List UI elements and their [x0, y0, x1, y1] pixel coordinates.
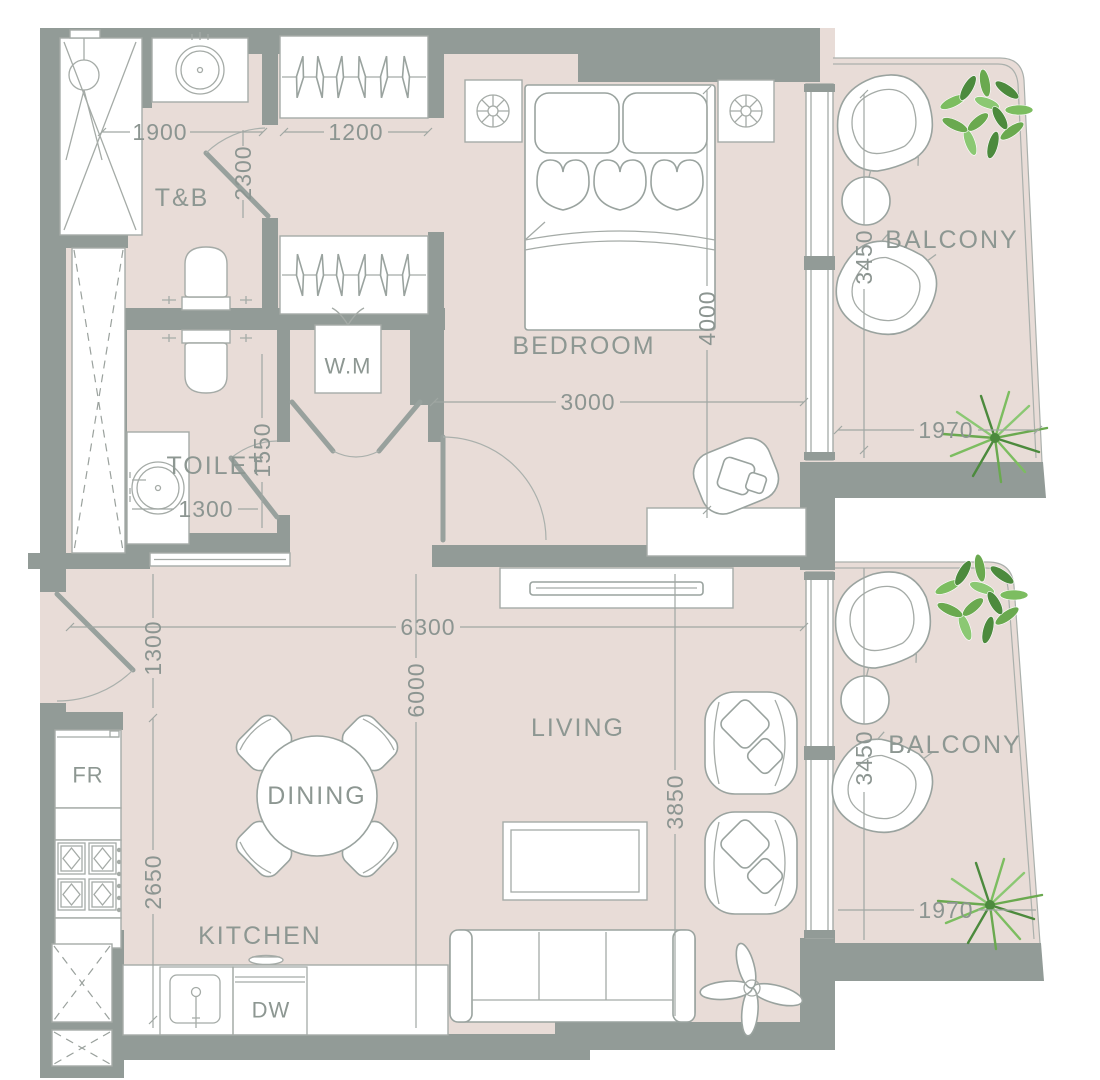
kitchen-counter-mid [55, 808, 121, 840]
wall-shower-divider [142, 28, 152, 108]
desk [647, 508, 806, 556]
label-balcony-lower: BALCONY [888, 731, 1021, 759]
dim-upper-balcony-length: 3450 [851, 229, 877, 284]
label-dishwasher: DW [252, 998, 291, 1023]
toilet-basin [127, 432, 189, 544]
label-washing-machine: W.M [325, 354, 372, 379]
wall-wm-right [410, 330, 428, 405]
nightstand-right [718, 80, 774, 142]
dim-kitchen-length: 2650 [140, 854, 166, 909]
wardrobe-top [280, 36, 428, 118]
dim-lower-balcony-length: 3450 [851, 730, 877, 785]
wall-kitchen-stub [53, 712, 123, 730]
dim-living-length: 6000 [403, 662, 429, 717]
armchair-1 [705, 692, 797, 794]
label-bedroom: BEDROOM [512, 332, 655, 360]
bedroom-window [804, 84, 835, 460]
dim-bedroom-length: 4000 [694, 290, 720, 345]
kitchen-bottom-counter [123, 956, 448, 1036]
armchair-2 [705, 812, 797, 914]
label-living: LIVING [531, 714, 625, 742]
label-dining: DINING [267, 782, 367, 810]
wall-tb-right-upper [262, 28, 278, 125]
dim-living-width: 3850 [662, 774, 688, 829]
wall-top-thick [578, 28, 820, 82]
wall-bottom-right [555, 1022, 835, 1050]
label-toilet: TOILET [166, 452, 265, 480]
tb-toilet [182, 247, 230, 310]
living-window [804, 572, 835, 938]
dim-tb-width: 1900 [132, 119, 187, 145]
wall-hall-top [28, 553, 150, 569]
label-tb: T&B [155, 184, 210, 212]
wall-closet-stub-top [428, 36, 444, 118]
dim-overall-width: 6300 [400, 614, 455, 640]
dim-wardrobe-width: 1200 [328, 119, 383, 145]
floor-plan-drawing: 1900 1200 2300 3000 4000 3450 1970 1550 … [0, 0, 1100, 1080]
shaft-boxes [52, 944, 112, 1066]
wall-right-lower [800, 938, 835, 1050]
stove [55, 840, 121, 918]
entry-shelf [150, 553, 290, 566]
coffee-table [503, 822, 647, 900]
wall-closet-stub-bottom [428, 232, 444, 314]
label-fridge: FR [72, 763, 103, 788]
wall-shaft-top [40, 235, 128, 248]
wall-toilet-right-upper [277, 330, 290, 442]
wall-bedroom-left [428, 330, 444, 442]
floor-plan-canvas: 1900 1200 2300 3000 4000 3450 1970 1550 … [0, 0, 1100, 1080]
dim-lower-balcony-width: 1970 [918, 897, 973, 923]
bed [525, 85, 715, 330]
wall-toilet-right-lower [277, 515, 290, 553]
lower-balcony-slab [833, 943, 1044, 981]
nightstand-left [465, 80, 522, 142]
dim-entry-hall-width: 1300 [140, 620, 166, 675]
dim-bedroom-width: 3000 [560, 389, 615, 415]
wall-tb-right-lower [262, 218, 278, 314]
toilet-room-wc [182, 330, 230, 393]
wardrobe-bottom [280, 236, 428, 314]
dim-tb-length: 2300 [230, 145, 256, 200]
dim-upper-balcony-width: 1970 [918, 417, 973, 443]
upper-balcony-slab [833, 462, 1046, 498]
tv-console [500, 568, 733, 608]
label-kitchen: KITCHEN [198, 922, 322, 950]
sofa [450, 930, 695, 1022]
label-balcony-upper: BALCONY [885, 226, 1018, 254]
tb-basin [152, 32, 248, 102]
duct-shaft [72, 248, 125, 553]
dim-toilet-width: 1300 [178, 496, 233, 522]
